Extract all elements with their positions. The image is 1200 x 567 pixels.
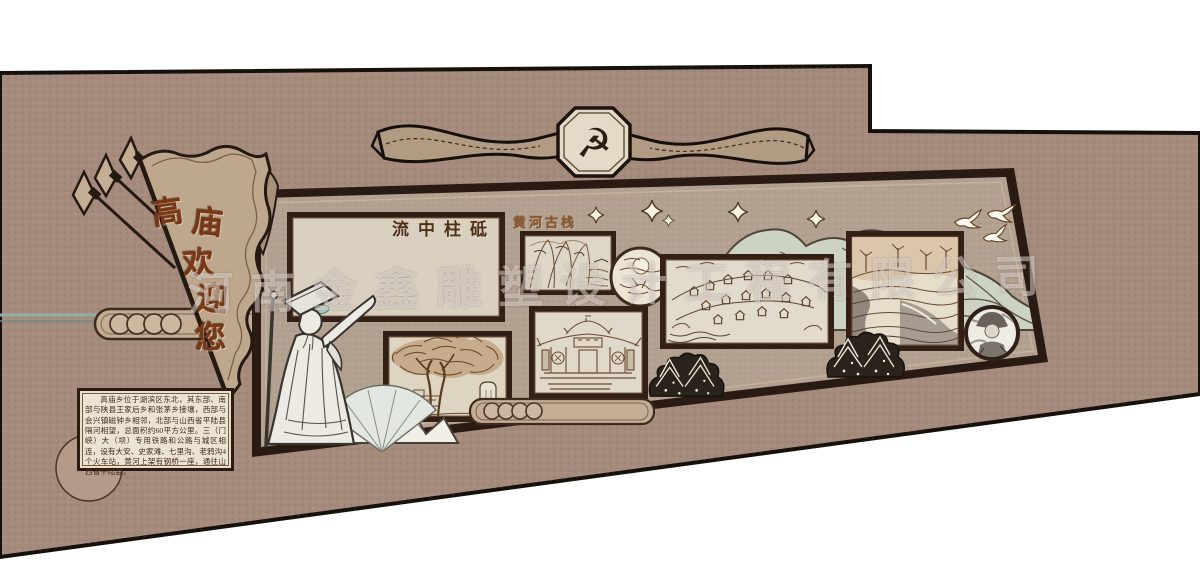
- party-emblem: ☭: [558, 108, 630, 176]
- party-emblem-icon: ☭: [576, 121, 612, 167]
- village-panel: [660, 254, 834, 349]
- temple-panel: [529, 306, 648, 399]
- design-canvas: ☭ 高 庙 欢 迎 您 流中柱砥 黄河古栈 高庙乡位于湖滨区东北，其东部、南部与…: [0, 0, 1200, 567]
- plank-road-panel: [520, 231, 616, 295]
- portrait-photo: [964, 305, 1020, 361]
- cloud-scroll-band-bottom: [470, 399, 654, 424]
- wall-scene: ☭: [0, 0, 1200, 567]
- wall-circle-motif: [56, 435, 122, 501]
